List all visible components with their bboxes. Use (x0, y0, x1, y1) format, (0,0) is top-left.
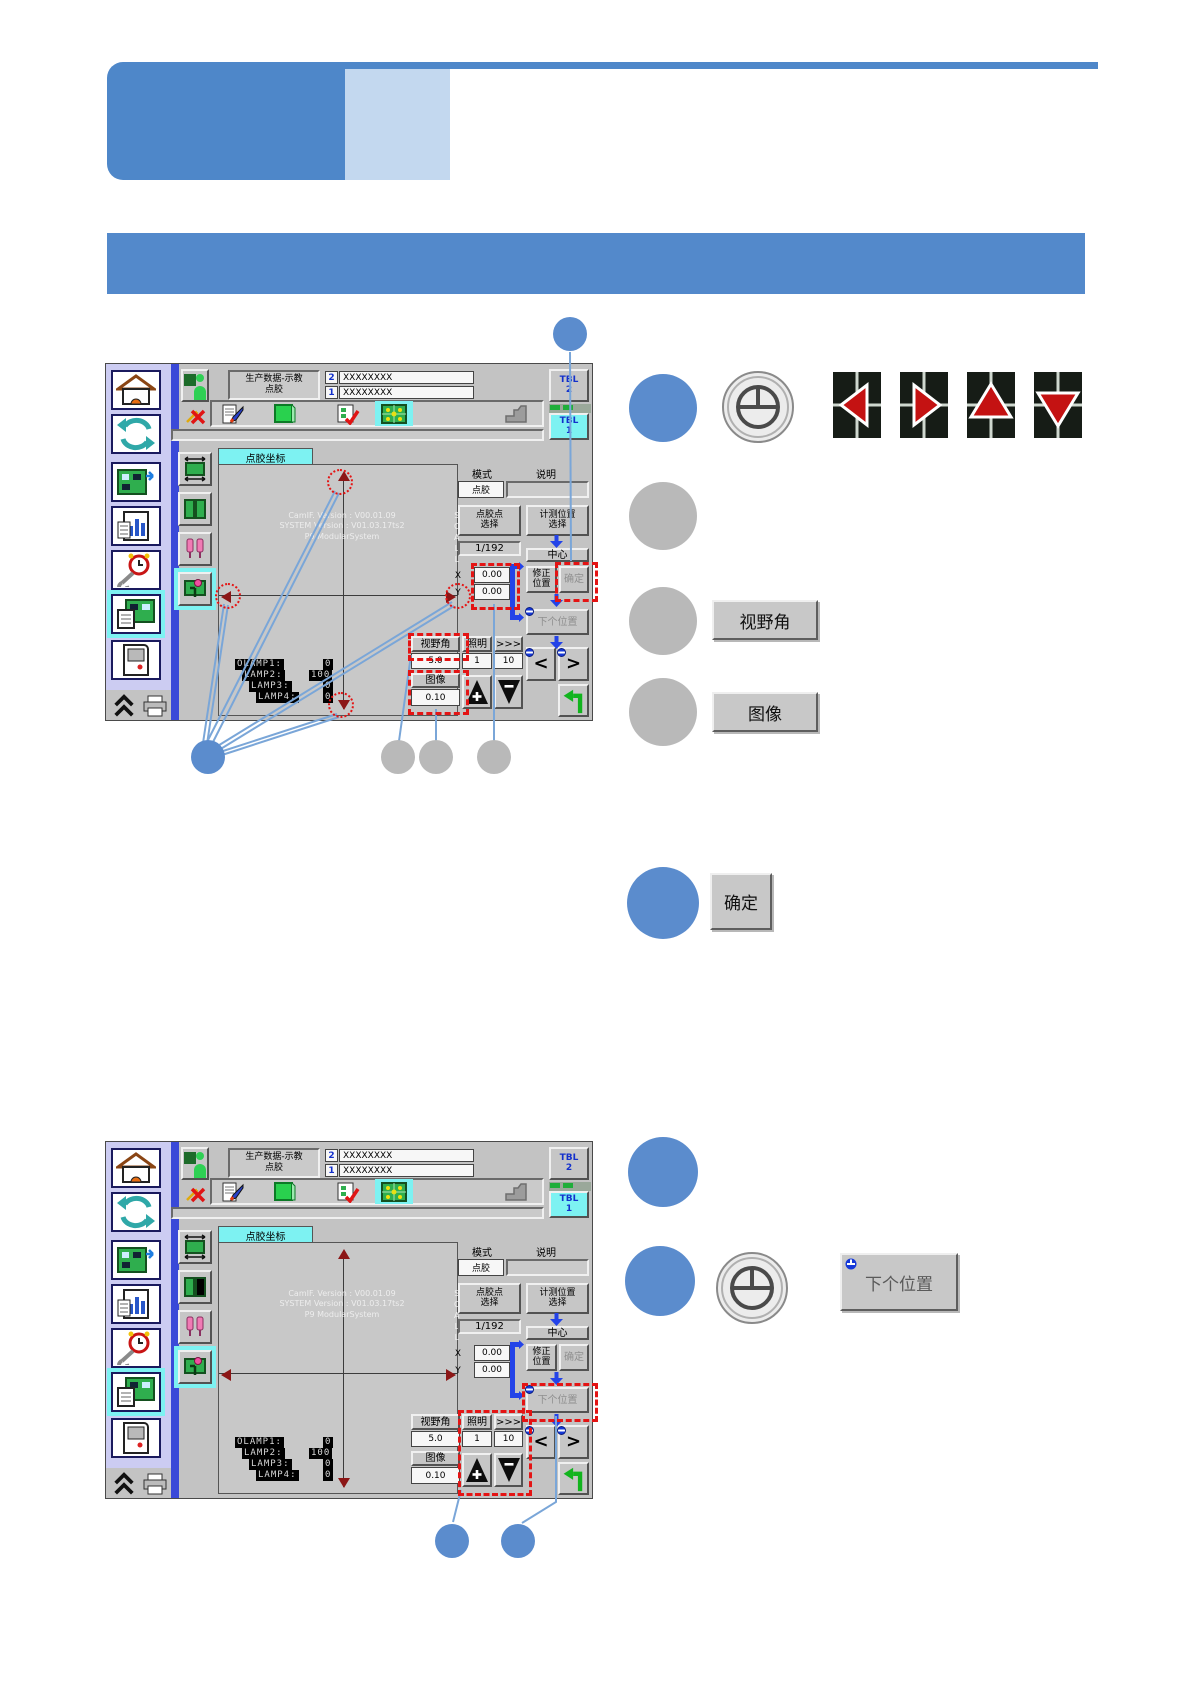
dotted-circle-top-arrow (327, 469, 353, 495)
sidebar-exit-button[interactable] (111, 1418, 161, 1458)
dispense-point-tool-active[interactable] (178, 1350, 212, 1384)
tbl2-number: 2 (566, 386, 572, 396)
window-title: 生产数据-示教 点胶 (228, 370, 320, 400)
pcb-icon (116, 466, 156, 498)
correct-position-l2: 位置 (532, 580, 550, 590)
board-dimension-icon (182, 1234, 208, 1260)
center-button[interactable]: 中心 (526, 548, 589, 562)
press-icon (504, 404, 528, 424)
y-value-field[interactable]: 0.00 (474, 1362, 510, 1378)
dispense-point-select-button[interactable]: 点胶点选择 (458, 1283, 521, 1314)
pcb-doc-icon (116, 1376, 156, 1408)
window-title-line1: 生产数据-示教 (245, 374, 302, 385)
lamp1-value: 0 (323, 659, 333, 670)
chevron-right-icon: > (566, 1432, 581, 1452)
sidebar (106, 1142, 171, 1468)
next-position-button-disabled[interactable]: 下个位置 (526, 609, 589, 635)
tab-label: 点胶坐标 (246, 450, 286, 465)
lamp4-name: LAMP4: (256, 1470, 299, 1481)
image-button-label: 图像 (426, 1453, 446, 1464)
fov-button-image-label: 视野角 (740, 608, 791, 633)
point-counter: 1/192 (458, 1319, 521, 1334)
syringes-icon (182, 1314, 208, 1340)
step-button-label: >>> (496, 639, 521, 650)
mode-value: 点胶 (458, 481, 504, 498)
dispense-point-select-l2: 选择 (480, 521, 498, 531)
version-line2: SYSTEM Version : V01.03.17ts2 (237, 1299, 447, 1309)
trackball-icon (721, 370, 795, 444)
jog-assign-dot-icon (525, 607, 534, 616)
callout-circle-step5 (628, 1137, 698, 1207)
ok-button-image: 确定 (710, 873, 772, 930)
mode-label: 模式 (462, 467, 502, 480)
crosshair-horizontal (219, 1373, 458, 1374)
sidebar-exit-button[interactable] (111, 640, 161, 680)
panels-icon (182, 1274, 208, 1300)
section-header-bar (107, 233, 1085, 294)
lamp1-name: OLAMP1: (235, 659, 284, 670)
press-icon (504, 1182, 528, 1202)
dispense-point-tool-active[interactable] (178, 572, 212, 606)
return-arrow-icon (561, 1465, 587, 1493)
fov-button[interactable]: 视野角 (411, 1414, 460, 1430)
x-value-field[interactable]: 0.00 (474, 1345, 510, 1361)
verify-button[interactable] (335, 1180, 361, 1203)
lamp4-value: 0 (323, 1470, 333, 1481)
center-button-label: 中心 (548, 550, 568, 561)
door-icon (118, 1421, 154, 1455)
chevron-left-icon: < (533, 654, 548, 674)
ok-button-disabled[interactable]: 确定 (559, 1344, 589, 1371)
alarm-wrench-icon (116, 553, 156, 587)
dotted-circle-right-arrow (445, 583, 471, 609)
lamp1-name: OLAMP1: (235, 1437, 284, 1448)
sidebar-report-button[interactable] (111, 506, 161, 546)
tbl2-number: 2 (566, 1164, 572, 1174)
print-icon[interactable] (142, 1472, 168, 1496)
return-button[interactable] (558, 684, 589, 717)
sidebar-teach-button[interactable] (111, 594, 161, 634)
callout-circle-image-ref (419, 740, 453, 774)
measure-position-select-l2: 选择 (548, 1299, 566, 1309)
sidebar-board-button[interactable] (111, 462, 161, 502)
sidebar-maintenance-button[interactable] (111, 1328, 161, 1368)
person-board-icon (183, 372, 207, 400)
lamp2-name: LAMP2: (242, 670, 285, 681)
dispense-point-select-l2: 选择 (480, 1299, 498, 1309)
sidebar-report-button[interactable] (111, 1284, 161, 1324)
next-position-button-image: 下个位置 (840, 1253, 958, 1311)
lamp2-value: 100 (309, 1448, 332, 1459)
tbl1-number: 1 (566, 1205, 572, 1215)
abort-button[interactable] (183, 402, 207, 426)
image-button-image: 图像 (712, 692, 818, 732)
sidebar-home-button[interactable] (111, 1148, 161, 1188)
ok-button-image-label: 确定 (724, 889, 758, 914)
sidebar-teach-button[interactable] (111, 1372, 161, 1412)
slot2-value: XXXXXXXX (339, 371, 474, 384)
lamp1-value: 0 (323, 1437, 333, 1448)
panel-layout-button[interactable] (178, 1270, 212, 1304)
correct-position-button[interactable]: 修正位置 (526, 566, 557, 593)
area-button[interactable] (268, 402, 299, 425)
dispense-point-select-button[interactable]: 点胶点选择 (458, 505, 521, 536)
next-position-button-image-label: 下个位置 (865, 1270, 933, 1295)
version-line1: CamIF. Version : V00.01.09 (237, 511, 447, 521)
description-value (506, 481, 589, 498)
callout-circle-step2 (629, 482, 697, 550)
doc-edit-icon (221, 1181, 245, 1203)
tab-dispense-coordinates[interactable]: 点胶坐标 (218, 448, 313, 465)
sidebar-home-button[interactable] (111, 370, 161, 410)
status-strip (171, 1207, 544, 1219)
minus-triangle-icon (497, 679, 521, 705)
point-counter: 1/192 (458, 541, 521, 556)
sidebar-board-button[interactable] (111, 1240, 161, 1280)
crosshair-horizontal (219, 595, 458, 596)
center-button[interactable]: 中心 (526, 1326, 589, 1340)
collapse-chevrons-icon[interactable] (113, 1472, 135, 1496)
tbl2-button[interactable]: TBL2 (549, 1147, 589, 1180)
highlight-fov-button (408, 633, 469, 661)
slot1-number: 1 (325, 386, 338, 399)
light-button-label: 照明 (467, 639, 487, 650)
step-button[interactable]: >>> (494, 636, 523, 652)
version-text: CamIF. Version : V00.01.09 SYSTEM Versio… (237, 1289, 447, 1320)
print-icon[interactable] (142, 694, 168, 718)
coordinates-button-active[interactable] (375, 401, 413, 426)
coordinates-button-active[interactable] (375, 1179, 413, 1204)
slot2-value: XXXXXXXX (339, 1149, 474, 1162)
callout-circle-xy-ref (477, 740, 511, 774)
image-value-field[interactable]: 0.10 (411, 1467, 460, 1484)
image-button-image-label: 图像 (748, 700, 782, 725)
return-arrow-icon (561, 687, 587, 715)
callout-circle-step1 (629, 374, 697, 442)
slot1-value: XXXXXXXX (339, 1164, 474, 1177)
callout-circle-ok-step (627, 867, 699, 939)
highlight-image-group (408, 670, 469, 715)
description-value (506, 1259, 589, 1276)
measure-position-select-l2: 选择 (548, 521, 566, 531)
correct-position-l2: 位置 (532, 1358, 550, 1368)
area-button[interactable] (268, 1180, 299, 1203)
chart-doc-icon (116, 510, 156, 542)
callout-circle-light-ref (435, 1524, 469, 1558)
chart-doc-icon (116, 1288, 156, 1320)
version-line1: CamIF. Version : V00.01.09 (237, 1289, 447, 1299)
lamp3-value: 0 (323, 1459, 333, 1470)
lamp3-name: LAMP3: (249, 1459, 292, 1470)
jog-assign-dot-icon (845, 1258, 857, 1270)
sidebar-cycle-button[interactable] (111, 1192, 161, 1232)
tbl-indicator-strip (549, 404, 591, 413)
banner-top-line (345, 62, 1098, 69)
ok-button-label: 确定 (564, 1352, 584, 1363)
image-button[interactable]: 图像 (411, 1451, 460, 1466)
arrow-key-down-photo (1034, 372, 1082, 438)
callout-circle-step3 (629, 587, 697, 655)
board-size-button[interactable] (178, 452, 212, 486)
green-square-icon (272, 1181, 296, 1203)
syringes-icon (182, 536, 208, 562)
board-dimension-icon (182, 456, 208, 482)
version-line3: P9 ModularSystem (237, 532, 447, 542)
jog-assign-dot-icon (557, 648, 566, 657)
callout-circle-next-ref (501, 1524, 535, 1558)
highlight-light-step-group (458, 1410, 532, 1496)
jog-assign-dot-icon (525, 648, 534, 657)
dotted-circle-left-arrow (215, 583, 241, 609)
slot1-value: XXXXXXXX (339, 386, 474, 399)
home-icon (116, 1152, 156, 1184)
panel-layout-button[interactable] (178, 492, 212, 526)
sidebar-maintenance-button[interactable] (111, 550, 161, 590)
board-pin-icon (182, 576, 208, 602)
teach-mode-button[interactable] (181, 1147, 209, 1180)
board-size-button[interactable] (178, 1230, 212, 1264)
center-button-label: 中心 (548, 1328, 568, 1339)
tbl1-number: 1 (566, 427, 572, 437)
lamp2-value: 100 (309, 670, 332, 681)
cycle-icon (116, 1195, 156, 1229)
lamp3-name: LAMP3: (249, 681, 292, 692)
window-title-line2: 点胶 (265, 385, 283, 396)
y-axis-label: Y (452, 1364, 464, 1377)
slot2-number: 2 (325, 1149, 338, 1162)
chevron-right-icon: > (566, 654, 581, 674)
tab-dispense-coordinates[interactable]: 点胶坐标 (218, 1226, 313, 1243)
callout-circle-ok-top (553, 317, 587, 351)
highlight-next-position-button (522, 1383, 598, 1422)
machine-screenshot-2: 生产数据-示教 点胶 2 XXXXXXXX 1 XXXXXXXX TBL2 TB… (105, 1141, 593, 1499)
board-dots-icon (380, 1181, 408, 1203)
edit-data-button[interactable] (219, 402, 247, 425)
slot2-number: 2 (325, 371, 338, 384)
person-board-icon (183, 1150, 207, 1178)
callout-circle-step4 (629, 678, 697, 746)
tbl1-button[interactable]: TBL1 (549, 1191, 589, 1218)
press-button-disabled (502, 402, 529, 425)
cycle-icon (116, 417, 156, 451)
lamp-status-block: OLAMP1:0 LAMP2:100 LAMP3:0 LAMP4:0 (235, 1437, 347, 1483)
callout-circle-markers (191, 740, 225, 774)
tbl1-button[interactable]: TBL1 (549, 413, 589, 440)
document-page: 生产数据-示教 点胶 2 XXXXXXXX 1 XXXXXXXX TBL2 TB… (0, 0, 1190, 1684)
no-entry-icon (184, 1181, 206, 1203)
chevron-left-icon: < (533, 1432, 548, 1452)
axis-arrow-up (338, 1249, 350, 1259)
trackball-icon (715, 1251, 789, 1325)
board-check-icon (336, 403, 360, 425)
window-title-line2: 点胶 (265, 1163, 283, 1174)
version-line3: P9 ModularSystem (237, 1310, 447, 1320)
highlight-ok-button (555, 562, 598, 602)
next-position-label: 下个位置 (538, 617, 578, 628)
board-dots-icon (380, 403, 408, 425)
tab-label: 点胶坐标 (246, 1228, 286, 1243)
flow-arrow-down-1 (550, 1313, 563, 1326)
pcb-icon (116, 1244, 156, 1276)
arrow-key-up-photo (967, 372, 1015, 438)
return-button[interactable] (558, 1462, 589, 1495)
pcb-doc-icon (116, 598, 156, 630)
x-axis-label: X (452, 569, 464, 582)
description-label: 说明 (526, 467, 566, 480)
board-check-icon (336, 1181, 360, 1203)
status-strip (171, 429, 544, 441)
callout-circle-step6 (625, 1246, 695, 1316)
mode-label: 模式 (462, 1245, 502, 1258)
jog-assign-dot-icon (557, 1426, 566, 1435)
axis-arrow-left (221, 1369, 231, 1381)
press-button-disabled (502, 1180, 529, 1203)
measure-position-select-button[interactable]: 计测位置选择 (526, 505, 589, 536)
green-square-icon (272, 403, 296, 425)
sidebar (106, 364, 171, 690)
doc-edit-icon (221, 403, 245, 425)
verify-button[interactable] (335, 402, 361, 425)
banner-light-block (345, 69, 450, 180)
step-value-field[interactable]: 10 (494, 653, 523, 669)
edit-data-button[interactable] (219, 1180, 247, 1203)
lamp4-name: LAMP4: (256, 692, 299, 703)
version-line2: SYSTEM Version : V01.03.17ts2 (237, 521, 447, 531)
highlight-xy-values (471, 563, 520, 610)
dotted-circle-bottom-arrow (328, 692, 354, 718)
dispenser-button[interactable] (178, 532, 212, 566)
x-axis-label: X (452, 1347, 464, 1360)
window-title: 生产数据-示教 点胶 (228, 1148, 320, 1178)
home-icon (116, 374, 156, 406)
callout-circle-fov-ref (381, 740, 415, 774)
arrow-key-left-photo (833, 372, 881, 438)
dispenser-button[interactable] (178, 1310, 212, 1344)
board-pin-icon (182, 1354, 208, 1380)
mode-value: 点胶 (458, 1259, 504, 1276)
lamp3-value: 0 (323, 681, 333, 692)
correct-position-button[interactable]: 修正位置 (526, 1344, 557, 1371)
alarm-wrench-icon (116, 1331, 156, 1365)
lamp2-name: LAMP2: (242, 1448, 285, 1459)
teach-mode-button[interactable] (181, 369, 209, 402)
measure-position-select-button[interactable]: 计测位置选择 (526, 1283, 589, 1314)
machine-screenshot-1: 生产数据-示教 点胶 2 XXXXXXXX 1 XXXXXXXX TBL2 TB… (105, 363, 593, 721)
description-label: 说明 (526, 1245, 566, 1258)
panels-icon (182, 496, 208, 522)
collapse-chevrons-icon[interactable] (113, 694, 135, 718)
zoom-out-button[interactable] (494, 675, 523, 709)
no-entry-icon (184, 403, 206, 425)
sidebar-cycle-button[interactable] (111, 414, 161, 454)
arrow-key-right-photo (900, 372, 948, 438)
abort-button[interactable] (183, 1180, 207, 1204)
banner-dark-block (107, 62, 345, 180)
tbl-indicator-strip (549, 1182, 591, 1191)
fov-button-image: 视野角 (712, 600, 818, 640)
slot1-number: 1 (325, 1164, 338, 1177)
flow-arrow-down-1 (550, 535, 563, 548)
window-title-line1: 生产数据-示教 (245, 1152, 302, 1163)
fov-button-label: 视野角 (421, 1417, 451, 1428)
tbl2-button[interactable]: TBL2 (549, 369, 589, 402)
door-icon (118, 643, 154, 677)
version-text: CamIF. Version : V00.01.09 SYSTEM Versio… (237, 511, 447, 542)
fov-value-field[interactable]: 5.0 (411, 1431, 460, 1447)
